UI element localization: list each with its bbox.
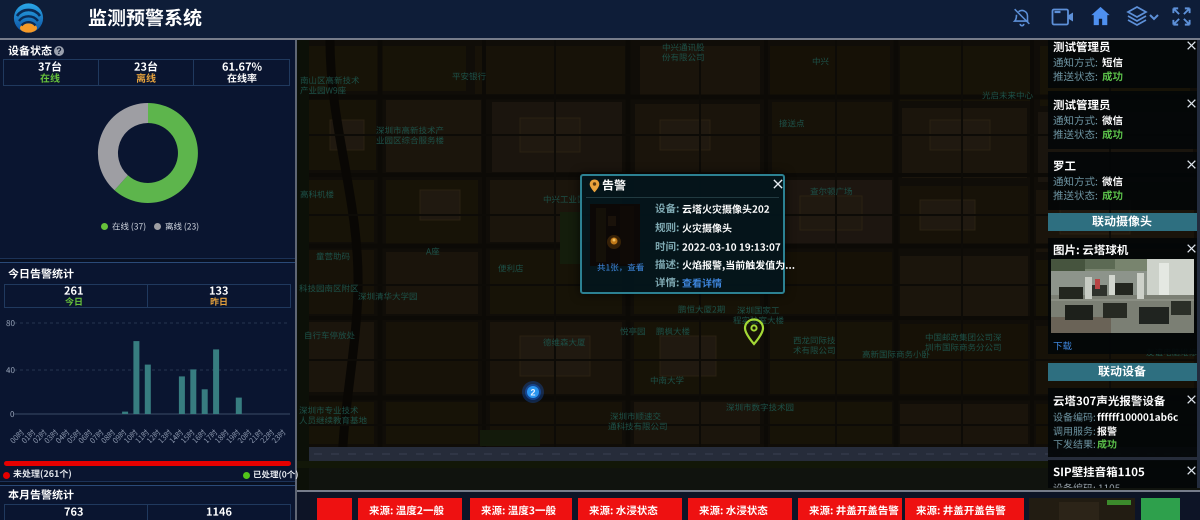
svg-text:2: 2	[530, 388, 535, 398]
